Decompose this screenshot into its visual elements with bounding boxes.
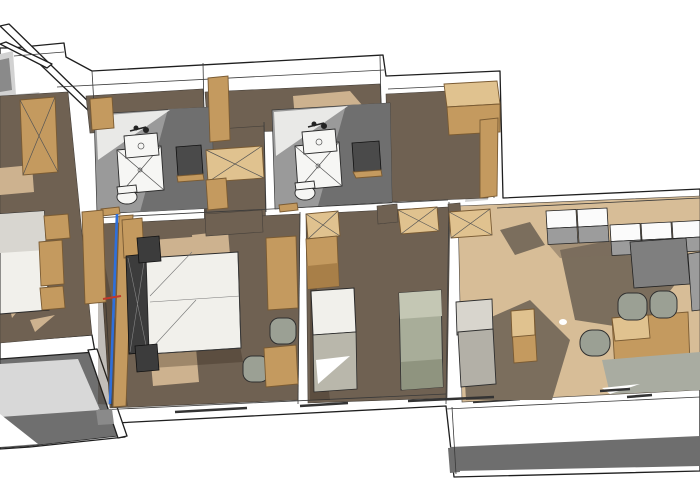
wardrobe-bedroom3 [208, 76, 230, 142]
single-bed-1-pillow [311, 288, 356, 335]
bathroom-2 [272, 103, 392, 212]
master-side-cabinet [266, 236, 298, 310]
wall-mirror-2 [352, 141, 381, 172]
pendant-light [559, 319, 567, 325]
nightstand-bottom [135, 344, 159, 372]
sofa-seat [458, 329, 496, 387]
nightstand-top [137, 236, 161, 263]
corner-cabinet-top [444, 81, 500, 107]
washbasin-2 [302, 129, 337, 154]
wall-corner-block [96, 409, 114, 425]
door-hall-to-master [205, 210, 263, 236]
dining-chair-3 [580, 330, 610, 356]
armchair-1 [270, 318, 296, 344]
nightstand-b [39, 240, 64, 286]
floor-plan-screenshot [0, 0, 700, 500]
wall-mirror-1 [176, 145, 203, 176]
tall-cabinet-left-room [82, 210, 106, 304]
dining-chair-2 [650, 291, 677, 318]
dining-chair-1 [618, 293, 647, 320]
bathroom2-threshold [279, 203, 298, 212]
door-twin-bedroom [377, 204, 398, 224]
balcony-left-post [448, 447, 460, 473]
nightstand-c [40, 286, 65, 310]
side-cabinet-panel [480, 118, 498, 198]
nightstand-a [44, 214, 70, 240]
master-desk [264, 345, 298, 387]
washbasin-1 [124, 133, 159, 158]
wardrobe-bedroom2 [90, 97, 114, 130]
floor-plan-rendering [0, 0, 700, 500]
hall-wardrobe-front [206, 178, 228, 210]
fridge-block [630, 238, 690, 288]
